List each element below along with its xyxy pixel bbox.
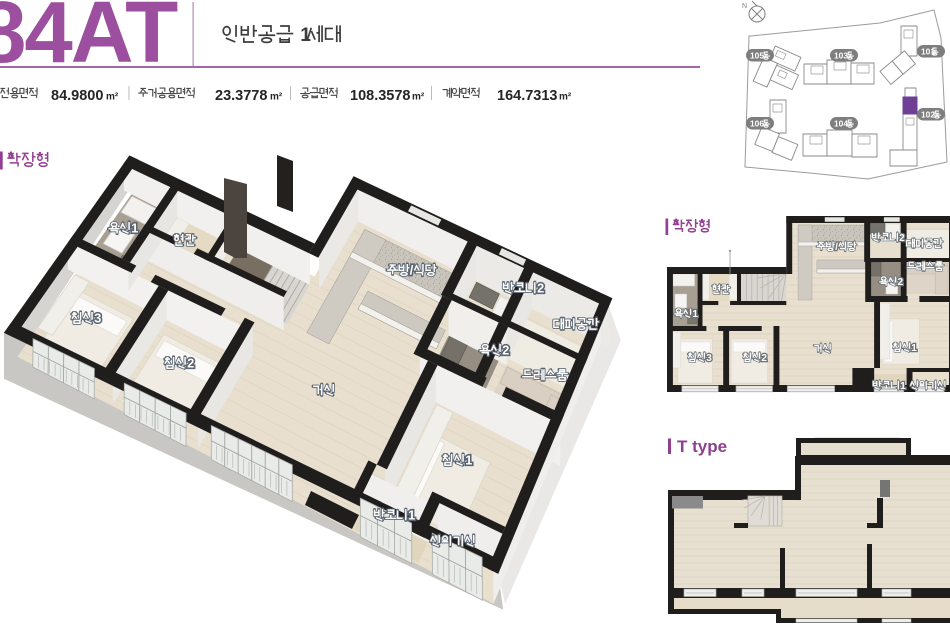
svg-text:2: 2: [537, 282, 544, 296]
svg-text:/: /: [410, 264, 414, 278]
svg-text:164.7313: 164.7313: [497, 88, 557, 104]
svg-text:1: 1: [692, 309, 698, 320]
svg-text:84.9800: 84.9800: [51, 88, 103, 104]
svg-text:104: 104: [834, 119, 848, 129]
svg-text:2: 2: [761, 353, 767, 364]
svg-text:N: N: [742, 3, 747, 10]
svg-text:2: 2: [187, 357, 194, 371]
svg-text:T type: T type: [677, 437, 727, 456]
svg-text:108.3578: 108.3578: [350, 88, 410, 104]
svg-text:3: 3: [706, 353, 712, 364]
svg-text:m²: m²: [412, 92, 425, 103]
svg-text:102: 102: [921, 110, 935, 120]
svg-text:3: 3: [94, 312, 101, 326]
svg-text:/: /: [835, 242, 838, 253]
svg-text:2: 2: [899, 233, 905, 244]
svg-text:105: 105: [750, 51, 764, 61]
svg-text:1: 1: [300, 25, 311, 46]
svg-text:1: 1: [911, 343, 917, 354]
svg-text:2: 2: [502, 344, 509, 358]
svg-text:1: 1: [900, 381, 906, 392]
svg-text:1: 1: [131, 222, 138, 236]
svg-text:m²: m²: [270, 92, 283, 103]
svg-text:1: 1: [408, 509, 415, 523]
svg-text:m²: m²: [559, 92, 572, 103]
svg-text:m²: m²: [106, 92, 119, 103]
svg-text:103: 103: [834, 51, 848, 61]
svg-text:1: 1: [465, 454, 472, 468]
svg-text:23.3778: 23.3778: [215, 88, 267, 104]
svg-text:84AT: 84AT: [0, 0, 178, 81]
svg-text:106: 106: [750, 119, 764, 129]
svg-text:101: 101: [921, 47, 935, 57]
svg-text:2: 2: [898, 277, 904, 288]
